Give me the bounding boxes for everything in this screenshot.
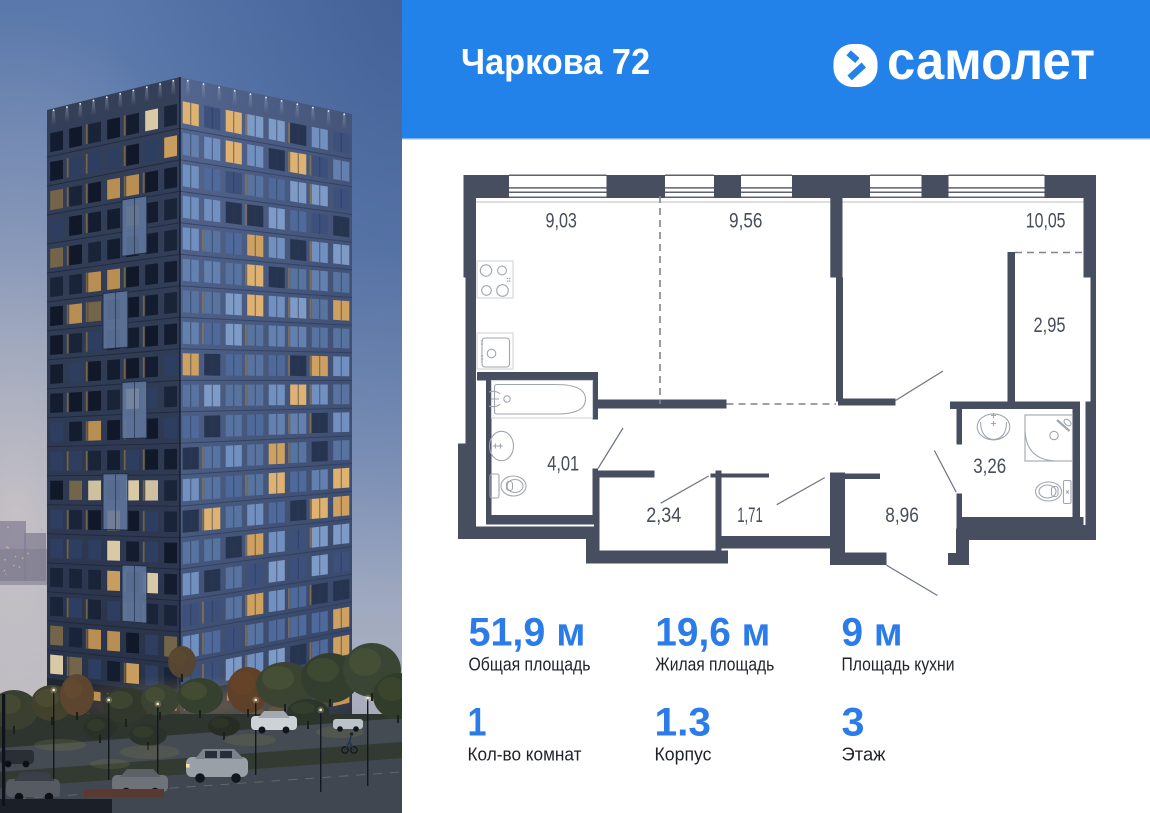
svg-text:9,03: 9,03 — [546, 210, 577, 233]
svg-text:3,26: 3,26 — [973, 455, 1006, 478]
svg-text:10,05: 10,05 — [1026, 210, 1066, 233]
svg-text:2,95: 2,95 — [1034, 314, 1066, 337]
svg-text:19,6 м: 19,6 м — [655, 611, 770, 655]
svg-text:Кол-во комнат: Кол-во комнат — [468, 744, 582, 765]
svg-text:Общая площадь: Общая площадь — [469, 654, 591, 675]
svg-text:51,9 м: 51,9 м — [469, 611, 586, 655]
svg-text:Площадь кухни: Площадь кухни — [842, 654, 955, 675]
svg-text:4,01: 4,01 — [547, 453, 579, 476]
svg-text:1,71: 1,71 — [737, 504, 763, 527]
svg-text:9,56: 9,56 — [729, 210, 763, 233]
svg-text:самолет: самолет — [887, 31, 1095, 91]
svg-text:2,34: 2,34 — [646, 504, 681, 527]
svg-text:Жилая площадь: Жилая площадь — [655, 654, 774, 675]
svg-text:1.3: 1.3 — [655, 701, 712, 745]
svg-text:9 м: 9 м — [842, 611, 903, 655]
svg-text:Чаркова 72: Чаркова 72 — [461, 41, 650, 82]
svg-text:8,96: 8,96 — [885, 504, 919, 527]
svg-text:3: 3 — [842, 701, 865, 745]
svg-text:Корпус: Корпус — [655, 744, 712, 765]
svg-text:1: 1 — [468, 701, 487, 745]
svg-text:Этаж: Этаж — [842, 744, 887, 765]
